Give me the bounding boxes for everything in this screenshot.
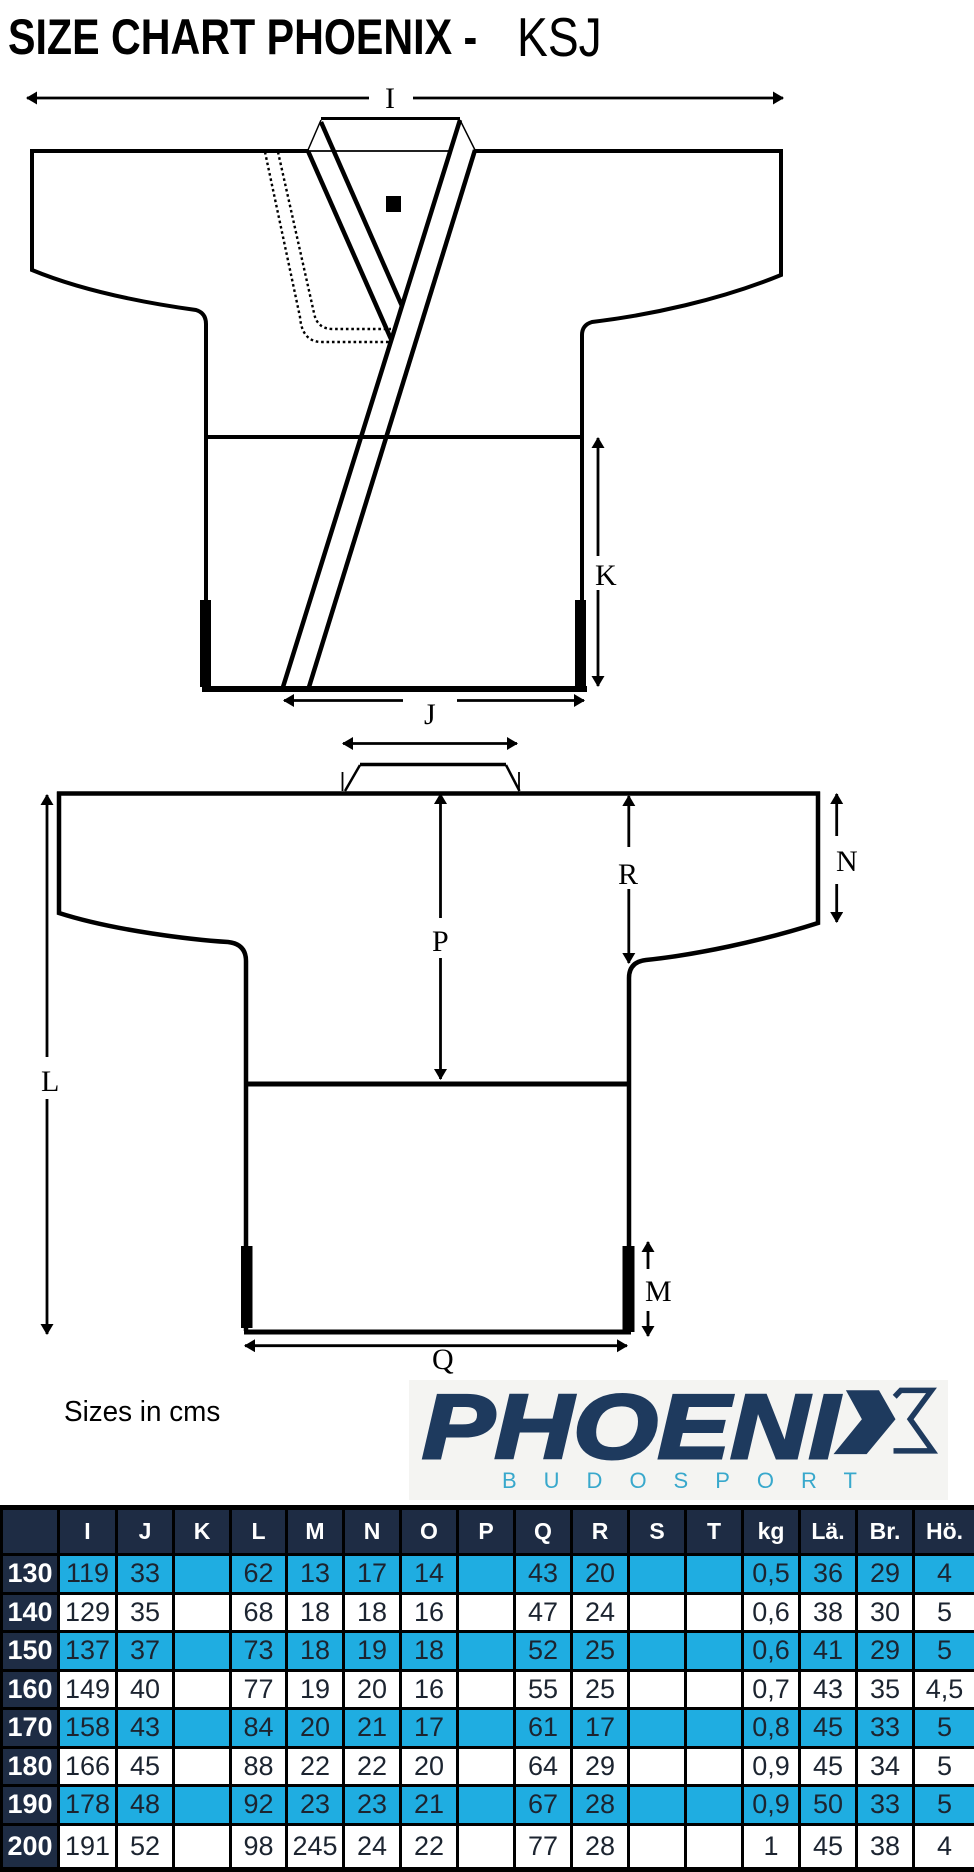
svg-text:M: M [645, 1275, 672, 1308]
svg-text:I: I [385, 82, 395, 115]
svg-text:R: R [618, 858, 638, 891]
svg-text:Q: Q [432, 1343, 454, 1376]
svg-text:K: K [595, 559, 617, 592]
svg-text:J: J [424, 698, 436, 731]
svg-text:PHOENI: PHOENI [422, 1380, 841, 1478]
svg-text:N: N [836, 845, 858, 878]
svg-text:BUDOSPORT: BUDOSPORT [502, 1468, 884, 1493]
svg-text:L: L [41, 1065, 59, 1098]
svg-text:P: P [432, 925, 449, 958]
